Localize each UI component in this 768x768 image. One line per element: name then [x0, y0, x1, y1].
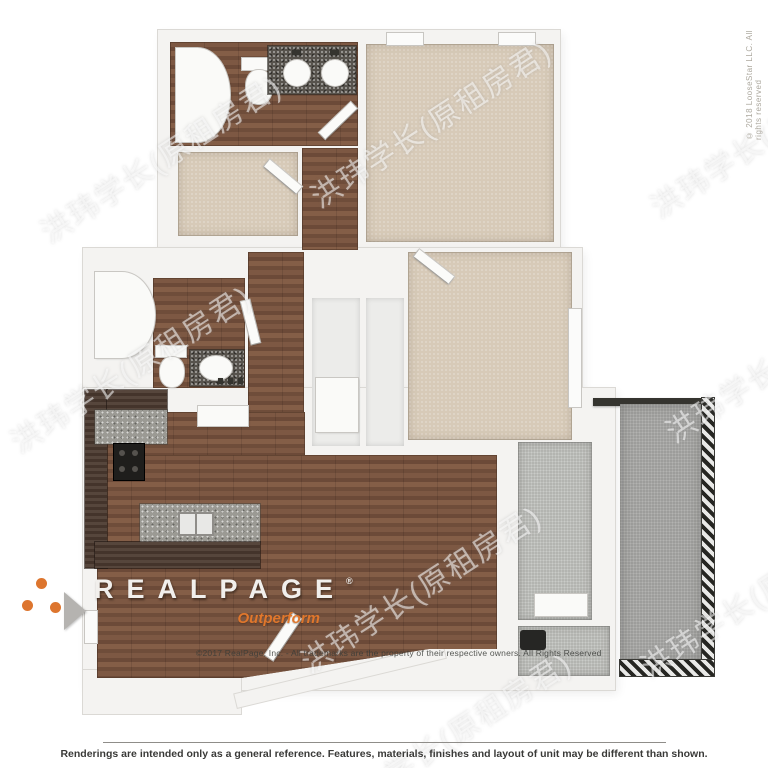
window: [386, 32, 424, 46]
floor-plan-page: 洪玮学长(原租房君) 洪玮学长(原租房君) 洪玮学长(原租房君) 洪玮学长(原租…: [0, 0, 768, 768]
toilet: [160, 357, 184, 387]
washer-dryer-unit: [316, 378, 358, 432]
vanity-sink: [322, 60, 348, 86]
kitchen-sink: [178, 512, 214, 536]
bedroom2-floor: [408, 252, 572, 440]
stove: [114, 444, 144, 480]
window: [498, 32, 536, 46]
side-credit: © 2018 LooseStar LLC. All rights reserve…: [745, 22, 763, 140]
faucet: [292, 50, 301, 55]
realpage-logo: REALPAGE®: [94, 574, 353, 605]
walkin-closet-floor: [178, 152, 298, 236]
logo-tagline: Outperform: [160, 610, 320, 627]
logo-dot-icon: [22, 600, 33, 611]
registered-mark: ®: [346, 576, 353, 586]
disclaimer-text: Renderings are intended only as a genera…: [0, 748, 768, 760]
realpage-copyright: ©2017 RealPage, Inc. - All trademarks ar…: [196, 648, 602, 658]
entry-rug: [535, 594, 587, 616]
burner: [132, 450, 138, 456]
vanity-decor: [228, 378, 233, 384]
realpage-logo-text: REALPAGE: [94, 574, 346, 604]
logo-arrow-icon: [64, 592, 86, 630]
kitchen-counter-white: [198, 406, 248, 426]
kitchen-cabinets-bottom: [95, 542, 260, 568]
sink-divider: [195, 514, 197, 534]
hallway-top-floor: [302, 148, 358, 250]
toilet-tank: [156, 346, 186, 357]
balcony-railing-bottom: [620, 660, 714, 676]
vanity-decor: [238, 378, 243, 384]
kitchen-counter-top: [95, 410, 167, 444]
logo-dot-icon: [50, 602, 61, 613]
vanity-sink: [200, 356, 232, 380]
closet-right-interior: [366, 298, 404, 446]
entry-mat: [520, 630, 546, 650]
faucet: [330, 50, 339, 55]
logo-dot-icon: [36, 578, 47, 589]
burner: [119, 450, 125, 456]
kitchen-cabinets-top: [107, 390, 167, 412]
burner: [119, 466, 125, 472]
balcony-railing-right: [702, 398, 714, 676]
footer-divider: [103, 742, 666, 743]
vanity-decor: [218, 378, 223, 384]
burner: [132, 466, 138, 472]
bedroom1-floor: [366, 44, 554, 242]
vanity-sink: [284, 60, 310, 86]
window: [84, 610, 98, 644]
window: [568, 308, 582, 408]
balcony-floor: [620, 404, 702, 662]
